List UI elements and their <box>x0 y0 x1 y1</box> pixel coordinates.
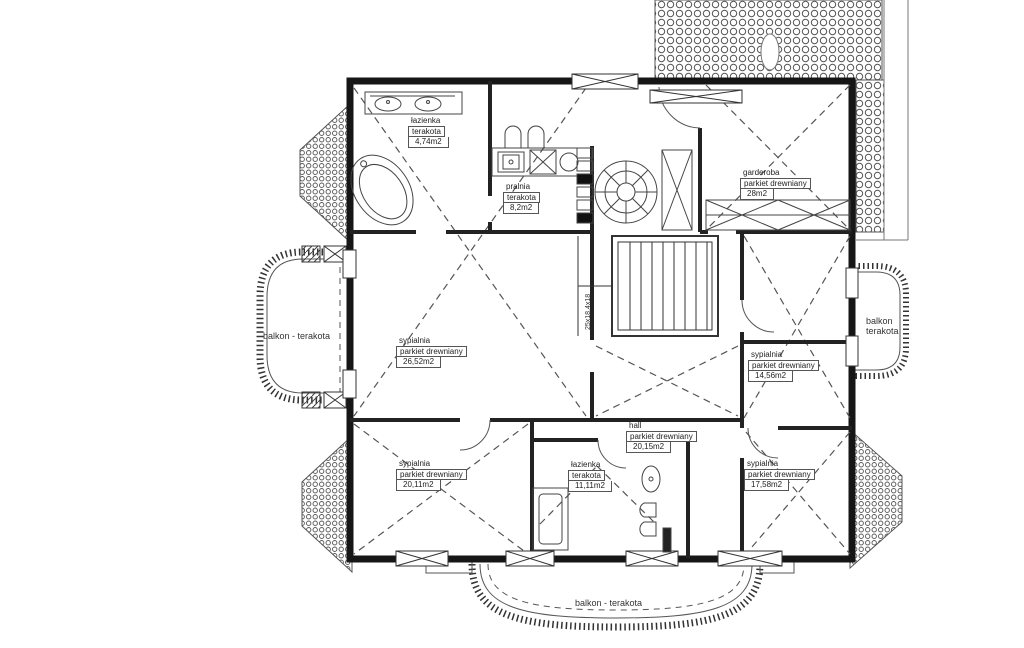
room-name: sypialnia <box>396 336 467 346</box>
window-top <box>572 74 638 89</box>
room-area: 28m2 <box>740 189 774 200</box>
room-area: 11,11m2 <box>568 481 612 492</box>
room-label-lazienka-bottom: łazienka terakota 11,11m2 <box>568 460 612 492</box>
room-area: 20,11m2 <box>396 480 441 491</box>
bay-roof-top-left <box>300 104 350 242</box>
balcony-bottom <box>426 562 794 627</box>
room-name: sypialnia <box>744 459 815 469</box>
room-area: 14,56m2 <box>748 371 793 382</box>
room-name: sypialnia <box>748 350 819 360</box>
balcony-label-right-line2: terakota <box>866 327 899 337</box>
room-name: łazienka <box>408 116 449 126</box>
wall-stub <box>663 528 671 552</box>
room-floor: parkiet drewniany <box>396 346 467 358</box>
room-floor: terakota <box>568 470 605 482</box>
bay-roof-bottom-left <box>302 436 352 572</box>
room-floor: parkiet drewniany <box>626 431 697 443</box>
window-bottom-1 <box>396 551 448 566</box>
chimney-on-roof <box>761 34 779 70</box>
balcony-label-bottom: balkon - terakota <box>575 598 642 608</box>
stair-dimension-text: 25x18,4x18 <box>585 294 592 330</box>
room-name: sypialnia <box>396 459 467 469</box>
room-label-garderoba: garderoba parkiet drewniany 28m2 <box>740 168 811 200</box>
window-bottom-4 <box>718 551 782 566</box>
chimney-shaft <box>662 150 692 230</box>
balcony-label-left: balkon - terakota <box>263 331 330 341</box>
balcony-door-right-1 <box>846 268 858 298</box>
room-area: 4,74m2 <box>408 137 449 148</box>
room-label-pralnia: pralnia terakota 8,2m2 <box>503 182 540 214</box>
room-floor: parkiet drewniany <box>396 469 467 481</box>
room-floor: parkiet drewniany <box>740 178 811 190</box>
room-floor: parkiet drewniany <box>744 469 815 481</box>
window-bottom-3 <box>626 551 678 566</box>
room-label-lazienka-top: łazienka terakota 4,74m2 <box>408 116 449 148</box>
room-area: 8,2m2 <box>503 203 539 214</box>
room-area: 26,52m2 <box>396 357 441 368</box>
room-name: garderoba <box>740 168 811 178</box>
room-label-hall: hall parkiet drewniany 20,15m2 <box>626 421 697 453</box>
room-name: łazienka <box>568 460 612 470</box>
balcony-door-right-2 <box>846 336 858 366</box>
balcony-door-left-2 <box>343 370 356 398</box>
bay-roof-bottom-right <box>850 430 902 568</box>
room-area: 20,15m2 <box>626 442 671 453</box>
room-label-sypialnia-bottom-left: sypialnia parkiet drewniany 20,11m2 <box>396 459 467 491</box>
window-bottom-2 <box>506 551 554 566</box>
room-floor: terakota <box>408 126 445 138</box>
balcony-door-left-1 <box>343 250 356 278</box>
room-name: hall <box>626 421 697 431</box>
floor-plan-canvas: łazienka terakota 4,74m2 pralnia terakot… <box>0 0 1024 648</box>
room-label-sypialnia-right: sypialnia parkiet drewniany 14,56m2 <box>748 350 819 382</box>
lintel-garderoba <box>650 90 742 103</box>
room-label-sypialnia-bottom-right: sypialnia parkiet drewniany 17,58m2 <box>744 459 815 491</box>
room-area: 17,58m2 <box>744 480 789 491</box>
room-floor: parkiet drewniany <box>748 360 819 372</box>
room-floor: terakota <box>503 192 540 204</box>
balcony-left <box>260 246 350 408</box>
room-label-sypialnia-left: sypialnia parkiet drewniany 26,52m2 <box>396 336 467 368</box>
room-name: pralnia <box>503 182 540 192</box>
